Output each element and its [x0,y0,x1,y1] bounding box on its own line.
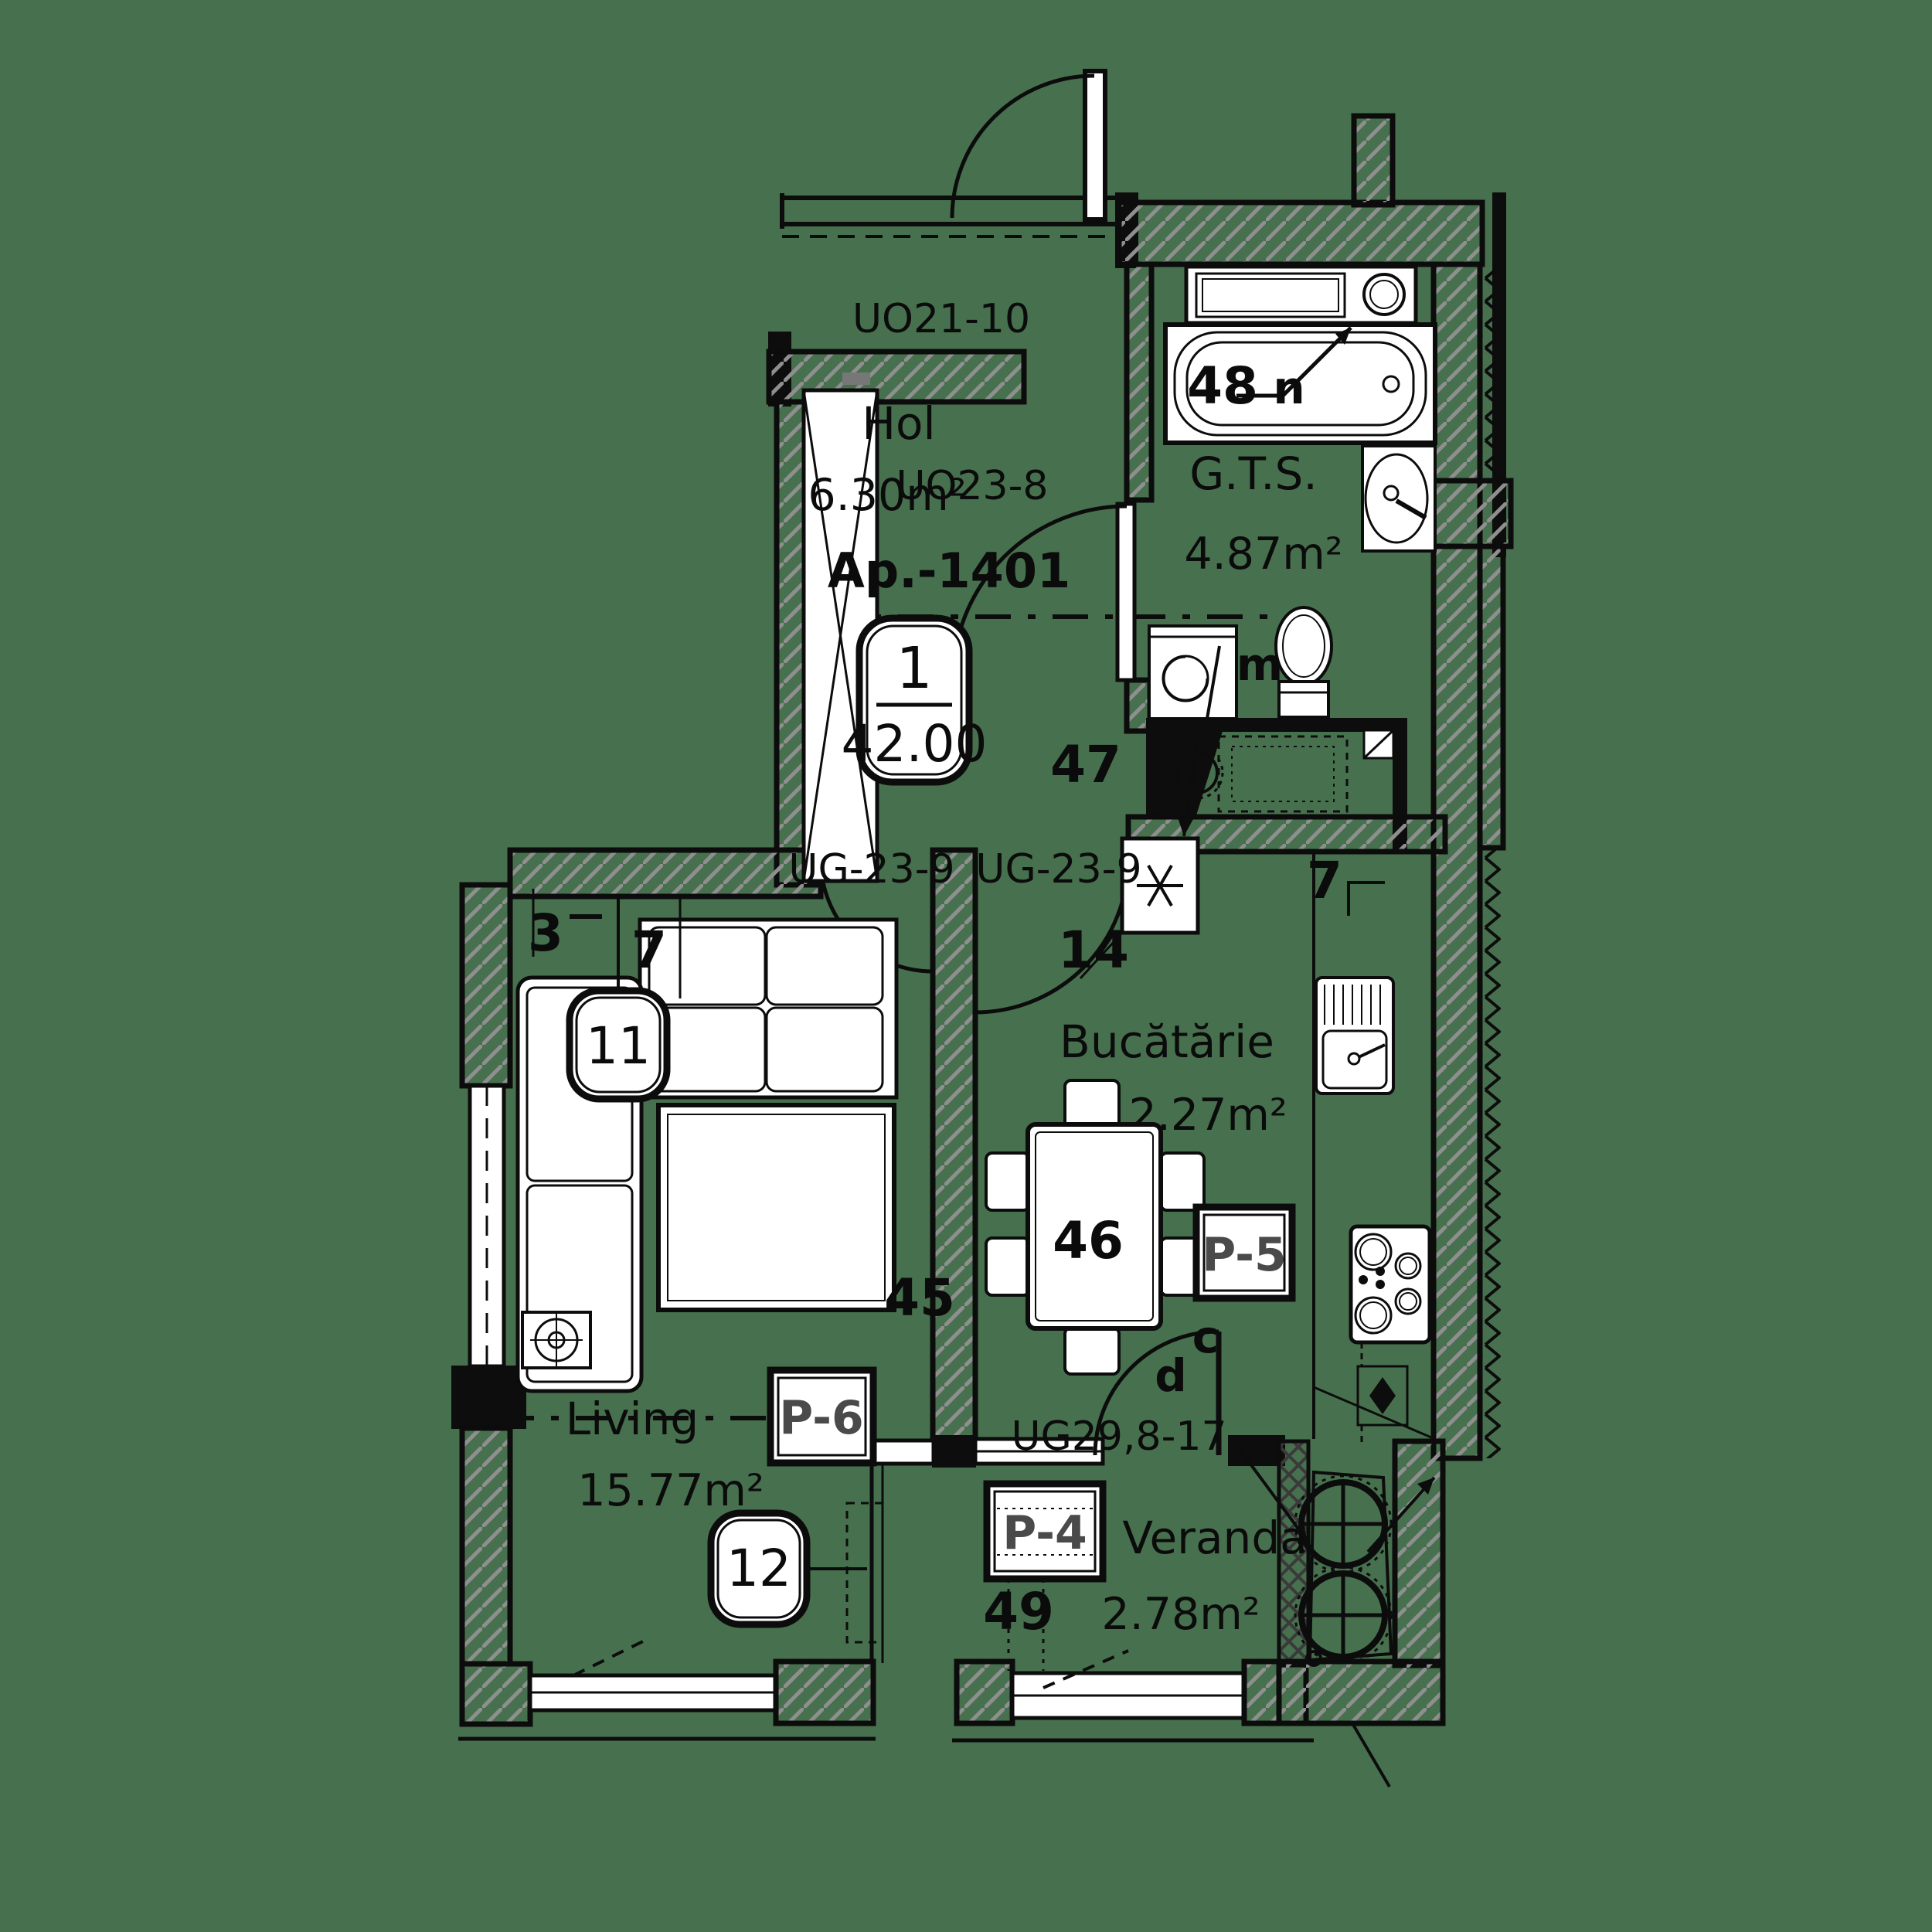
veranda-area-label: 2.78m² [1101,1589,1260,1640]
wall-wc-bottom-line [1149,719,1395,731]
kitchen-sink-icon [1316,978,1393,1094]
veranda-door-code: UG29,8-17 [1011,1413,1226,1460]
wall-bath-top [1119,202,1482,264]
callout-14: 14 [1058,920,1129,980]
insulation-strip-lower [1482,848,1501,1458]
window-box-p5: P-5 [1196,1207,1292,1298]
bathroom-door-code: UO23-8 [896,463,1048,509]
space-45: 45 [884,1268,955,1328]
wall-wc-step [1147,719,1162,817]
unit-total-area: 42.00 [842,714,988,774]
side-table-lamp-icon [522,1312,590,1368]
callout-12-label: 12 [726,1539,791,1598]
wall-bath-hol-upper [1127,264,1151,500]
space-49: 49 [983,1582,1054,1641]
window-living-left [470,1086,504,1366]
chair-icon [986,1153,1029,1210]
space-48: 48 [1187,356,1258,416]
wall-living-bottom-right-block [776,1662,873,1723]
axis-7-living: 7 [631,920,667,980]
insulation-strip-upper [1478,264,1496,479]
floor-plan-canvas: Bucătărie 12.27m² [0,0,1932,1932]
hol-name-label: Hol [862,397,935,450]
callout-11-label: 11 [586,1016,651,1076]
apartment-id-label: Ap.-1401 [828,543,1070,599]
chair-icon [1065,1328,1119,1374]
wall-right-outer-thick [1480,546,1503,848]
veranda-name-label: Veranda [1122,1512,1307,1564]
washing-machine-icon [1149,626,1236,719]
axis-3: 3 [528,903,563,963]
unit-badge: 1 42.00 [842,618,988,782]
letter-n: n [1273,362,1304,414]
chair-icon [1065,1080,1119,1128]
space-47: 47 [1050,735,1121,794]
chair-icon [986,1238,1029,1295]
vent-box-icon [1364,730,1393,758]
window-p5-label: P-5 [1202,1228,1287,1282]
letter-c: c [1192,1311,1219,1363]
gts-area-label: 4.87m² [1184,529,1342,580]
wall-right-exterior [1434,264,1480,1458]
wall-living-left-upper [462,885,510,1086]
wall-living-kitchen [933,850,975,1461]
gts-name-label: G.T.S. [1189,447,1318,500]
living-name-label: Living [566,1393,699,1445]
window-box-p6: P-6 [770,1370,873,1463]
letter-d: d [1155,1349,1187,1402]
stove-icon [1351,1226,1430,1342]
threshold-mark [842,372,870,385]
kitchen-door-code: UG-23-9 [975,846,1141,893]
living-door-code: UG-23-9 [788,846,954,893]
chair-icon [1161,1153,1204,1210]
axis-7-kitchen: 7 [1307,851,1342,910]
letter-m: m [1236,638,1283,691]
wall-hol-living [510,850,821,896]
window-p6-label: P-6 [779,1391,864,1445]
wall-top-notch [1354,116,1393,205]
unit-number: 1 [896,635,932,702]
living-area-label: 15.77m² [577,1465,764,1516]
kitchen-name-label: Bucătărie [1060,1015,1274,1068]
entry-door-code: UO21-10 [852,296,1030,342]
coffee-table-icon [658,1105,894,1310]
pillar-living-left [452,1366,526,1428]
floor-plan-page: Bucătărie 12.27m² [0,0,1932,1932]
wall-living-corner-block [462,1664,530,1724]
vanity-counter [1186,267,1416,323]
window-p4-label: P-4 [1002,1506,1087,1560]
washbasin-icon [1362,446,1435,551]
wall-living-left-lower [462,1428,510,1664]
space-46: 46 [1053,1211,1124,1270]
toilet-icon [1276,607,1332,717]
